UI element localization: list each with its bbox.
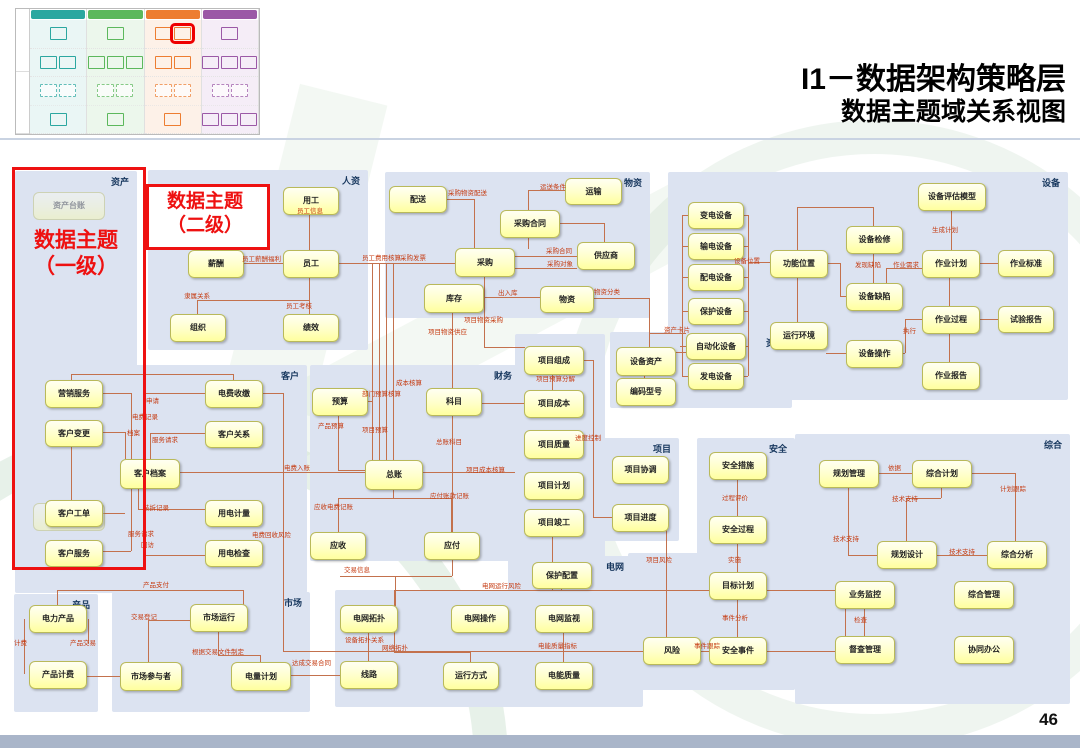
edge-label: 采购发票 [400,256,426,263]
connector-line [150,433,151,459]
thumbnail-column-header [31,10,85,19]
connector-line [877,473,913,474]
entity-规划设计: 规划设计 [877,541,937,569]
edge-label: 员工薪酬福利 [242,257,281,264]
entity-电费收缴: 电费收缴 [205,380,263,408]
entity-编码型号: 编码型号 [616,378,676,406]
edge-label: 检查 [854,618,867,625]
connector-line [57,590,243,591]
connector-line [288,675,340,676]
thumbnail-row [202,20,258,49]
thumbnail-doc-icon [240,56,257,69]
entity-项目进度: 项目进度 [612,504,669,532]
connector-line [394,590,845,591]
edge-label: 技术支持 [833,537,859,544]
connector-line [85,676,120,677]
edge-label: 隶属关系 [184,294,210,301]
edge-label: 实施 [728,558,741,565]
connector-line [949,276,950,306]
edge-label: 申请 [146,399,159,406]
thumbnail-doc-icon [164,113,181,126]
edge-label: 进度控制 [575,436,601,443]
connector-line [604,223,605,243]
edge-label: 计划跟踪 [1000,487,1026,494]
connector-line [593,517,612,518]
edge-label: 服务请求 [152,438,178,445]
region-label-equipment: 设备 [668,176,1060,189]
edge-label: 电费入账 [284,466,310,473]
connector-line [340,576,452,577]
entity-绩效: 绩效 [283,314,339,342]
entity-设备缺陷: 设备缺陷 [846,283,903,311]
connector-line [484,347,525,348]
connector-line [57,590,58,605]
edge-label: 电费回收风险 [252,533,291,540]
thumbnail-doc-icon [107,113,124,126]
entity-设备操作: 设备操作 [846,340,903,368]
thumbnail-doc-icon [59,84,76,97]
thumbnail-doc-icon [221,113,238,126]
connector-line [797,276,798,322]
entity-用电计量: 用电计量 [205,500,263,527]
entity-作业过程: 作业过程 [922,306,980,334]
thumbnail-row [145,49,201,78]
entity-总账: 总账 [365,460,423,490]
entity-设备检修: 设备检修 [846,226,903,254]
connector-line [150,433,205,434]
edge-label: 项目预算分解 [536,377,575,384]
connector-line [949,332,950,362]
connector-line [338,470,365,471]
edge-label: 生成计划 [932,228,958,235]
thumbnail-doc-icon [155,84,172,97]
edge-label: 作业需求 [893,263,919,270]
connector-line [260,655,261,662]
entity-项目协调: 项目协调 [612,456,669,484]
entity-项目组成: 项目组成 [524,346,584,375]
connector-line [971,473,1015,474]
thumbnail-doc-icon [40,56,57,69]
thumbnail-row [145,77,201,106]
entity-电量计划: 电量计划 [231,662,291,691]
edge-label: 项目预算 [362,428,388,435]
edge-label: 交易信息 [344,568,370,575]
edge-label: 出入库 [498,291,518,298]
connector-line [558,223,604,224]
thumbnail-column-header [146,10,200,19]
entity-安全措施: 安全措施 [709,452,767,480]
connector-line [474,199,475,249]
edge-label: 员工考核 [286,304,312,311]
edge-label: 项目风险 [646,558,672,565]
thumbnail-doc-icon [202,113,219,126]
edge-label: 项目物资供应 [428,330,467,337]
entity-配电设备: 配电设备 [688,264,744,291]
edge-label: 设备位置 [734,259,760,266]
entity-综合计划: 综合计划 [912,460,972,488]
entity-用电检查: 用电检查 [205,540,263,567]
edge-label: 应收电费记账 [314,505,353,512]
thumbnail-doc-icon [116,84,133,97]
connector-line [748,215,749,376]
entity-电网监视: 电网监视 [535,605,593,633]
connector-line [283,393,284,651]
thumbnail-doc-icon [126,56,143,69]
connector-line [840,263,841,296]
connector-line [395,576,396,606]
entity-变电设备: 变电设备 [688,202,744,229]
connector-line [797,207,873,208]
edge-label: 产品预算 [318,424,344,431]
entity-客户关系: 客户关系 [205,421,263,448]
entity-员工: 员工 [283,250,339,278]
thumbnail-doc-icon [174,84,191,97]
connector-line [906,498,907,541]
level1-annotation-label: 数据主题 （一级） [14,228,138,281]
overview-thumbnail [15,8,260,135]
thumbnail-column [87,9,144,134]
edge-label: 交易登记 [131,615,157,622]
edge-label: 事件跟踪 [694,644,720,651]
thumbnail-doc-icon [221,56,238,69]
thumbnail-row [145,20,201,49]
connector-line [848,555,877,556]
edge-label: 物资分类 [594,290,620,297]
entity-线路: 线路 [340,661,398,689]
thumbnail-doc-icon [221,27,238,40]
entity-试验报告: 试验报告 [998,306,1054,333]
entity-电网拓扑: 电网拓扑 [340,605,398,633]
entity-作业标准: 作业标准 [998,250,1054,277]
thumbnail-column [202,9,259,134]
connector-line [682,215,683,376]
edge-label: 总账科目 [436,440,462,447]
entity-作业报告: 作业报告 [922,362,980,390]
thumbnail-doc-icon [240,113,257,126]
edge-label: 采购对象 [547,262,573,269]
thumbnail-doc-icon [155,27,172,40]
thumbnail-doc-icon [40,84,57,97]
thumbnail-column [30,9,87,134]
thumbnail-doc-icon [231,84,248,97]
connector-line [145,555,205,556]
thumbnail-doc-icon [202,56,219,69]
entity-协同办公: 协同办公 [954,636,1014,664]
connector-line [243,590,244,605]
edge-label: 资产卡片 [664,328,690,335]
edge-label: 应付账款记账 [430,494,469,501]
entity-电网操作: 电网操作 [451,605,509,633]
edge-label: 过程评价 [722,496,748,503]
entity-综合管理: 综合管理 [954,581,1014,609]
entity-风险: 风险 [643,637,701,665]
entity-产品计费: 产品计费 [29,661,87,689]
edge-label: 设备拓扑关系 [345,638,384,645]
edge-label: 发现缺陷 [855,263,881,270]
connector-line [451,498,452,532]
thumbnail-row [87,20,143,49]
edge-label: 采购物资配送 [448,191,487,198]
slide-canvas: I1－数据架构策略层 数据主题域关系视图 资产人资物资设备资产客户财务项目安全综… [0,0,1080,748]
thumbnail-column-body [202,20,258,134]
connector-line [197,300,198,314]
entity-目标计划: 目标计划 [709,572,767,600]
entity-设备资产: 设备资产 [616,347,676,376]
connector-line [528,190,529,210]
connector-line [513,256,577,257]
connector-line [446,199,474,200]
thumbnail-doc-icon [155,56,172,69]
edge-label: 运送条件 [540,185,566,192]
edge-label: 执行 [903,329,916,336]
connector-line [886,268,887,283]
entity-设备评估模型: 设备评估模型 [918,183,986,211]
thumbnail-row [202,77,258,106]
edge-label: 电能质量指标 [538,644,577,651]
entity-采购: 采购 [455,248,515,277]
thumbnail-column [145,9,202,134]
entity-应付: 应付 [424,532,480,560]
connector-line [261,393,283,394]
entity-保护设备: 保护设备 [688,298,744,325]
page-subtitle: 数据主题域关系视图 [841,92,1066,128]
region-label-general: 综合 [795,438,1062,451]
edge-label: 网络拓扑 [382,646,408,653]
header-divider [0,138,1080,140]
entity-综合分析: 综合分析 [987,541,1047,569]
connector-line [1015,473,1016,541]
connector-line [593,298,649,299]
edge-label: 装拆记录 [143,506,169,513]
thumbnail-column-header [88,10,142,19]
thumbnail-column-body [30,20,86,134]
entity-市场运行: 市场运行 [190,604,248,632]
entity-库存: 库存 [424,284,484,313]
thumbnail-doc-icon [174,56,191,69]
thumbnail-doc-icon [97,84,114,97]
entity-物资: 物资 [540,286,594,313]
edge-label: 项目成本核算 [466,468,505,475]
connector-line [905,319,922,320]
thumbnail-row [145,106,201,135]
edge-label: 部门预算核算 [362,392,401,399]
entity-督查管理: 督查管理 [835,636,895,664]
entity-组织: 组织 [170,314,226,342]
connector-line [649,298,650,347]
thumbnail-row-gutter [16,9,30,134]
connector-line [873,207,874,226]
entity-项目计划: 项目计划 [524,472,584,500]
thumbnail-row [202,49,258,78]
entity-应收: 应收 [310,532,366,560]
entity-保护配置: 保护配置 [532,562,592,589]
thumbnail-row [30,49,86,78]
level2-annotation-label: 数据主题 （二级） [148,190,262,238]
entity-科目: 科目 [426,388,482,416]
connector-line [905,319,906,353]
thumbnail-row [87,49,143,78]
entity-供应商: 供应商 [577,242,635,270]
page-number: 46 [1039,710,1058,730]
connector-line [826,353,846,354]
entity-功能位置: 功能位置 [770,250,828,278]
edge-label: 成本核算 [396,381,422,388]
connector-line [309,213,310,250]
thumbnail-doc-icon [212,84,229,97]
entity-项目竣工: 项目竣工 [524,509,584,537]
connector-line [666,530,667,637]
edge-label: 员工费用核算 [362,256,401,263]
thumbnail-column-body [145,20,201,134]
entity-配送: 配送 [389,186,447,213]
footer-bar [0,735,1080,748]
entity-运输: 运输 [565,178,622,205]
entity-电能质量: 电能质量 [535,662,593,690]
thumbnail-doc-icon [88,56,105,69]
thumbnail-doc-icon [59,56,76,69]
connector-line [394,590,395,606]
connector-line [337,263,455,264]
connector-line [178,472,365,473]
edge-label: 根据交易文件制定 [192,650,244,657]
entity-作业计划: 作业计划 [922,250,980,278]
edge-label: 技术支持 [949,550,975,557]
edge-label: 采购合同 [546,249,572,256]
entity-采购合同: 采购合同 [500,210,560,238]
entity-发电设备: 发电设备 [688,363,744,390]
entity-输电设备: 输电设备 [688,233,744,260]
connector-line [848,486,849,555]
thumbnail-row [30,77,86,106]
thumbnail-row [202,106,258,135]
thumbnail-column-body [87,20,143,134]
entity-运行方式: 运行方式 [443,662,499,690]
edge-label: 电网运行风险 [482,584,521,591]
entity-业务监控: 业务监控 [835,581,895,609]
connector-line [470,652,471,662]
edge-label: 产品支付 [143,583,169,590]
thumbnail-doc-icon [50,113,67,126]
edge-label: 技术支持 [892,497,918,504]
edge-label: 事件分析 [722,616,748,623]
connector-line [148,620,149,663]
entity-薪酬: 薪酬 [188,250,244,278]
thumbnail-doc-icon [107,56,124,69]
thumbnail-doc-icon [174,27,191,40]
entity-规划管理: 规划管理 [819,460,879,488]
entity-市场参与者: 市场参与者 [120,662,182,691]
entity-电力产品: 电力产品 [29,605,87,633]
thumbnail-doc-icon [107,27,124,40]
connector-line [197,300,309,301]
entity-预算: 预算 [312,388,368,416]
entity-安全事件: 安全事件 [709,637,767,665]
connector-line [144,393,205,394]
edge-label: 员工信息 [297,209,323,216]
edge-label: 达成交易合同 [292,661,331,668]
edge-label: 项目物资采购 [464,318,503,325]
thumbnail-row [87,106,143,135]
thumbnail-row [30,20,86,49]
thumbnail-doc-icon [50,27,67,40]
connector-line [484,276,485,347]
thumbnail-column-header [203,10,257,19]
edge-label: 计费 [14,641,27,648]
connector-line [452,414,453,460]
entity-安全过程: 安全过程 [709,516,767,544]
entity-项目成本: 项目成本 [524,390,584,418]
entity-自动化设备: 自动化设备 [686,333,746,360]
connector-line [797,207,798,250]
thumbnail-row [87,77,143,106]
edge-label: 产品交易 [70,641,96,648]
entity-运行环境: 运行环境 [770,322,828,350]
edge-label: 依据 [888,466,901,473]
connector-line [368,631,369,661]
connector-line [393,263,394,461]
thumbnail-row [30,106,86,135]
